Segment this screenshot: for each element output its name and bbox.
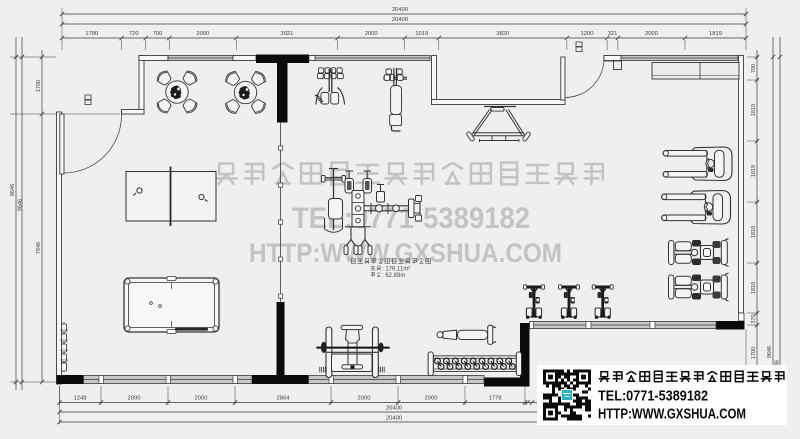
svg-text:2864: 2864: [277, 396, 291, 402]
svg-text:3820: 3820: [496, 31, 509, 37]
svg-text:700: 700: [153, 31, 163, 37]
svg-text:720: 720: [129, 31, 139, 37]
svg-text:9646: 9646: [10, 184, 16, 196]
svg-text:1019: 1019: [415, 31, 428, 37]
svg-text:1819: 1819: [751, 282, 757, 294]
svg-text:370: 370: [751, 314, 757, 323]
svg-text:: 62.89m: : 62.89m: [382, 273, 405, 279]
svg-text:2000: 2000: [195, 396, 208, 402]
svg-text:1819: 1819: [751, 104, 757, 116]
svg-text:20400: 20400: [386, 416, 402, 422]
svg-text:1780: 1780: [85, 31, 98, 37]
svg-text:1819: 1819: [751, 165, 757, 177]
svg-text:: 176.11m²: : 176.11m²: [382, 267, 410, 273]
svg-text:3021: 3021: [280, 31, 293, 37]
svg-text:1200: 1200: [581, 31, 594, 37]
svg-text:2000: 2000: [128, 396, 141, 402]
svg-text:1700: 1700: [751, 347, 757, 359]
svg-text:1248: 1248: [74, 396, 87, 402]
svg-text:20400: 20400: [386, 406, 402, 412]
svg-text:HTTP:WWW.GXSHUA.COM: HTTP:WWW.GXSHUA.COM: [249, 238, 562, 268]
svg-text:7946: 7946: [36, 242, 42, 254]
svg-text:20400: 20400: [392, 17, 408, 23]
svg-text:1778: 1778: [489, 396, 502, 402]
svg-text:2000: 2000: [425, 396, 438, 402]
svg-text:20400: 20400: [392, 7, 408, 13]
svg-text:700: 700: [751, 64, 757, 73]
svg-text:1700: 1700: [36, 80, 42, 92]
svg-text:1819: 1819: [709, 31, 722, 37]
svg-text:2000: 2000: [196, 31, 209, 37]
svg-text:9646: 9646: [767, 346, 773, 358]
svg-text:HTTP:WWW.GXSHUA.COM: HTTP:WWW.GXSHUA.COM: [598, 407, 746, 423]
svg-text:2000: 2000: [365, 31, 378, 37]
svg-text:321: 321: [608, 31, 618, 37]
svg-text:2000: 2000: [645, 31, 658, 37]
svg-text:TEL:0771-5389182: TEL:0771-5389182: [598, 388, 708, 405]
svg-text:2000: 2000: [358, 396, 371, 402]
svg-text:9646: 9646: [18, 199, 24, 211]
svg-text:1819: 1819: [751, 226, 757, 238]
